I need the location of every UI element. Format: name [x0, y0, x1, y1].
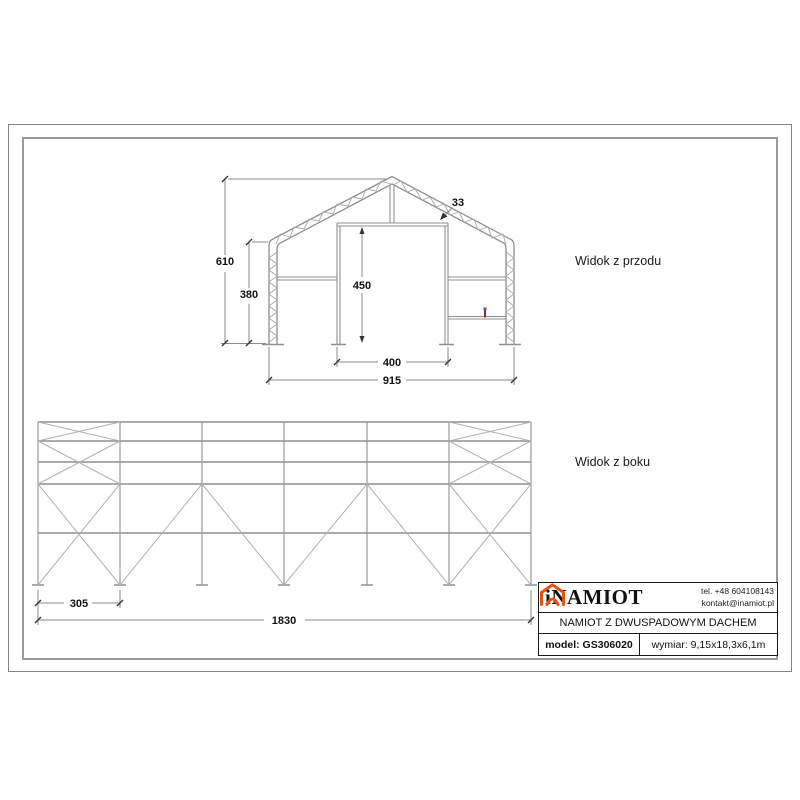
- dimension-arrows-front: [360, 213, 448, 344]
- drawing-sheet: 610 380 450 400 915 33: [0, 0, 800, 800]
- column-truss-web-left: [269, 252, 277, 342]
- tent-dimensions: wymiar: 9,15x18,3x6,1m: [640, 634, 777, 655]
- dim-door-width: 400: [383, 357, 401, 369]
- front-view-structure: [262, 177, 521, 346]
- dim-total-height: 610: [216, 256, 234, 268]
- contact-email: kontakt@inamiot.pl: [701, 598, 774, 609]
- contact-phone: tel. +48 604108143: [701, 586, 774, 597]
- dim-door-height: 450: [353, 280, 371, 292]
- front-view-dimensions: 610 380 450 400 915 33: [216, 176, 517, 387]
- front-view-label: Widok z przodu: [575, 254, 661, 268]
- title-block-spec-row: model: GS306020 wymiar: 9,15x18,3x6,1m: [539, 633, 777, 655]
- side-view-label: Widok z boku: [575, 455, 650, 469]
- side-view-dimensions: 305 1830: [35, 590, 534, 627]
- side-view-structure: [32, 422, 537, 585]
- dim-bay-width: 305: [70, 598, 88, 610]
- side-columns: [38, 422, 531, 585]
- technical-drawing-canvas: 610 380 450 400 915 33: [0, 0, 800, 800]
- truss-inner-chord: [277, 184, 506, 344]
- roof-truss-web-left: [276, 181, 391, 244]
- title-block: iNAMIOT tel. +48 604108143 kontakt@inami…: [538, 582, 778, 656]
- contact-info: tel. +48 604108143 kontakt@inamiot.pl: [701, 586, 774, 609]
- model-number: model: GS306020: [539, 634, 640, 655]
- dim-total-width: 915: [383, 375, 401, 387]
- door-frame: [337, 186, 448, 345]
- dim-truss-depth: 33: [452, 197, 464, 209]
- title-block-logo-row: iNAMIOT tel. +48 604108143 kontakt@inami…: [539, 583, 777, 612]
- product-title: NAMIOT Z DWUSPADOWYM DACHEM: [539, 612, 777, 633]
- column-truss-web-right: [506, 252, 514, 342]
- wall-beams: [277, 277, 506, 319]
- dim-wall-height: 380: [240, 289, 258, 301]
- dim-total-length: 1830: [272, 615, 296, 627]
